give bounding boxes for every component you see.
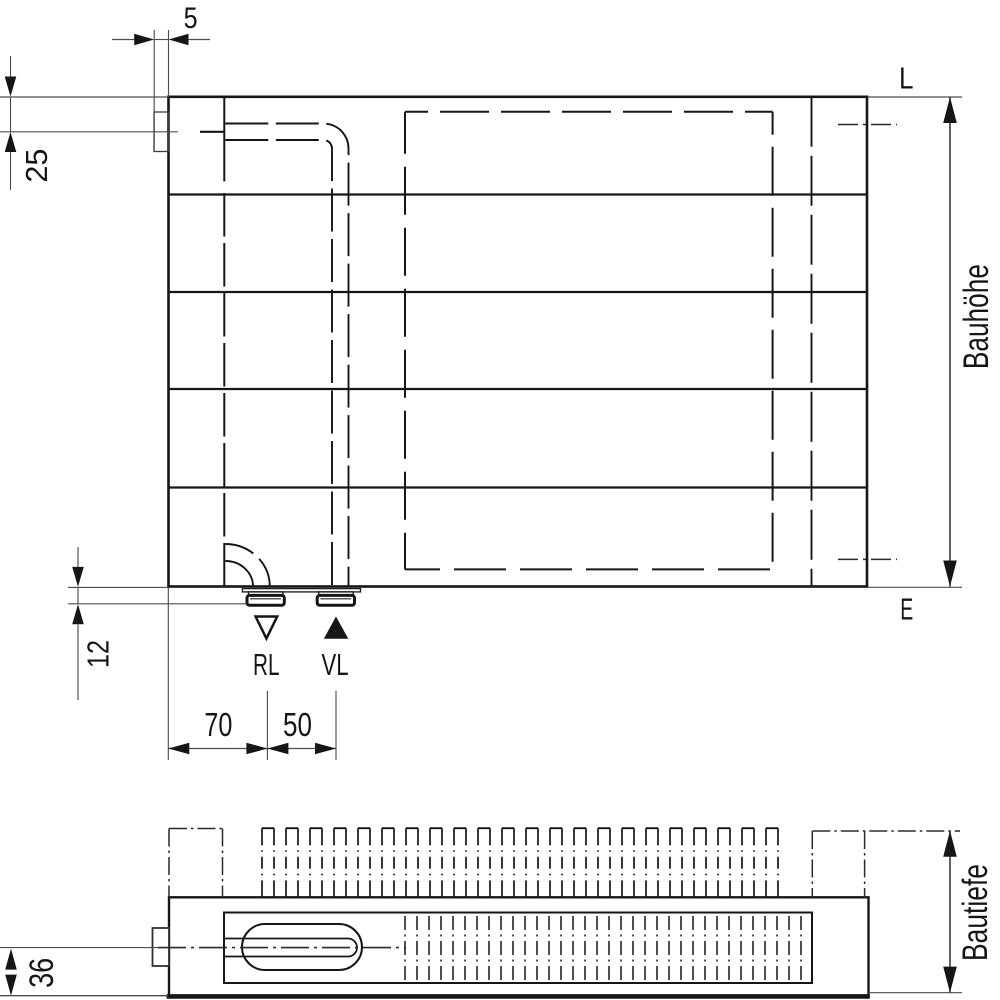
svg-text:VL: VL <box>322 647 349 682</box>
svg-text:50: 50 <box>283 706 312 743</box>
svg-text:Bautiefe: Bautiefe <box>956 864 995 961</box>
svg-text:RL: RL <box>253 647 280 682</box>
svg-text:E: E <box>900 592 913 627</box>
svg-text:25: 25 <box>19 149 54 183</box>
svg-text:36: 36 <box>23 958 61 988</box>
svg-text:12: 12 <box>80 640 115 668</box>
svg-text:Bauhöhe: Bauhöhe <box>957 264 996 369</box>
svg-text:70: 70 <box>204 706 232 743</box>
svg-text:L: L <box>899 61 914 96</box>
svg-text:5: 5 <box>184 2 198 35</box>
